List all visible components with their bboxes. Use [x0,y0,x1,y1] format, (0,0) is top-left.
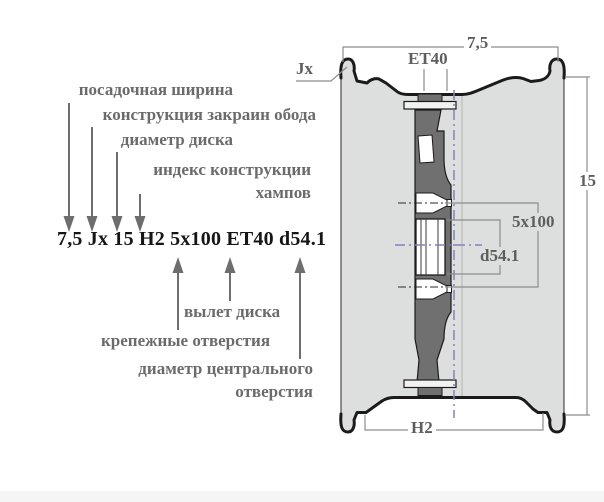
callout-hump-index: индекс конструкции хампов [153,158,311,204]
callout-center-bore-line2: отверстия [138,380,313,403]
callout-seat-width: посадочная ширина [79,78,233,101]
arrow-offset [225,257,236,301]
callout-flange-design: конструкция закраин обода [103,103,316,126]
center-bore [416,219,445,275]
rim-cross-section [341,59,564,432]
dim-label-center-bore: d54.1 [478,247,521,265]
callout-offset: вылет диска [184,300,280,323]
wheel-marking-code: 7,5 Jx 15 H2 5x100 ET40 d54.1 [57,228,326,251]
callout-hump-index-line1: индекс конструкции [153,158,311,181]
arrow-disc-diameter [112,152,123,232]
dim-offset-lines [424,69,447,91]
arrow-center-bore [295,257,306,359]
dim-label-diameter: 15 [576,172,599,190]
dim-label-offset: ET40 [405,50,451,68]
dim-label-flange-type: Jx [296,60,313,78]
dim-label-hump: H2 [408,419,436,437]
callout-hump-index-line2: хампов [153,181,311,204]
disc-vent-hole [418,135,434,163]
arrow-hump-index [135,194,146,232]
dim-diameter-lines [566,77,590,415]
arrow-bolt-holes [173,257,184,330]
wheel-marking-diagram: посадочная ширина конструкция закраин об… [0,0,604,502]
callout-bolt-holes: крепежные отверстия [101,329,270,352]
arrow-flange-design [87,127,98,232]
arrow-seat-width [64,103,75,232]
callout-center-bore: диаметр центрального отверстия [138,357,313,403]
callout-center-bore-line1: диаметр центрального [138,357,313,380]
callout-disc-diameter: диаметр диска [121,128,233,151]
bottom-border-strip [0,491,604,502]
dim-label-bolt-pattern: 5x100 [510,213,557,231]
dim-label-rim-width: 7,5 [464,34,491,52]
rim-body [341,59,564,432]
